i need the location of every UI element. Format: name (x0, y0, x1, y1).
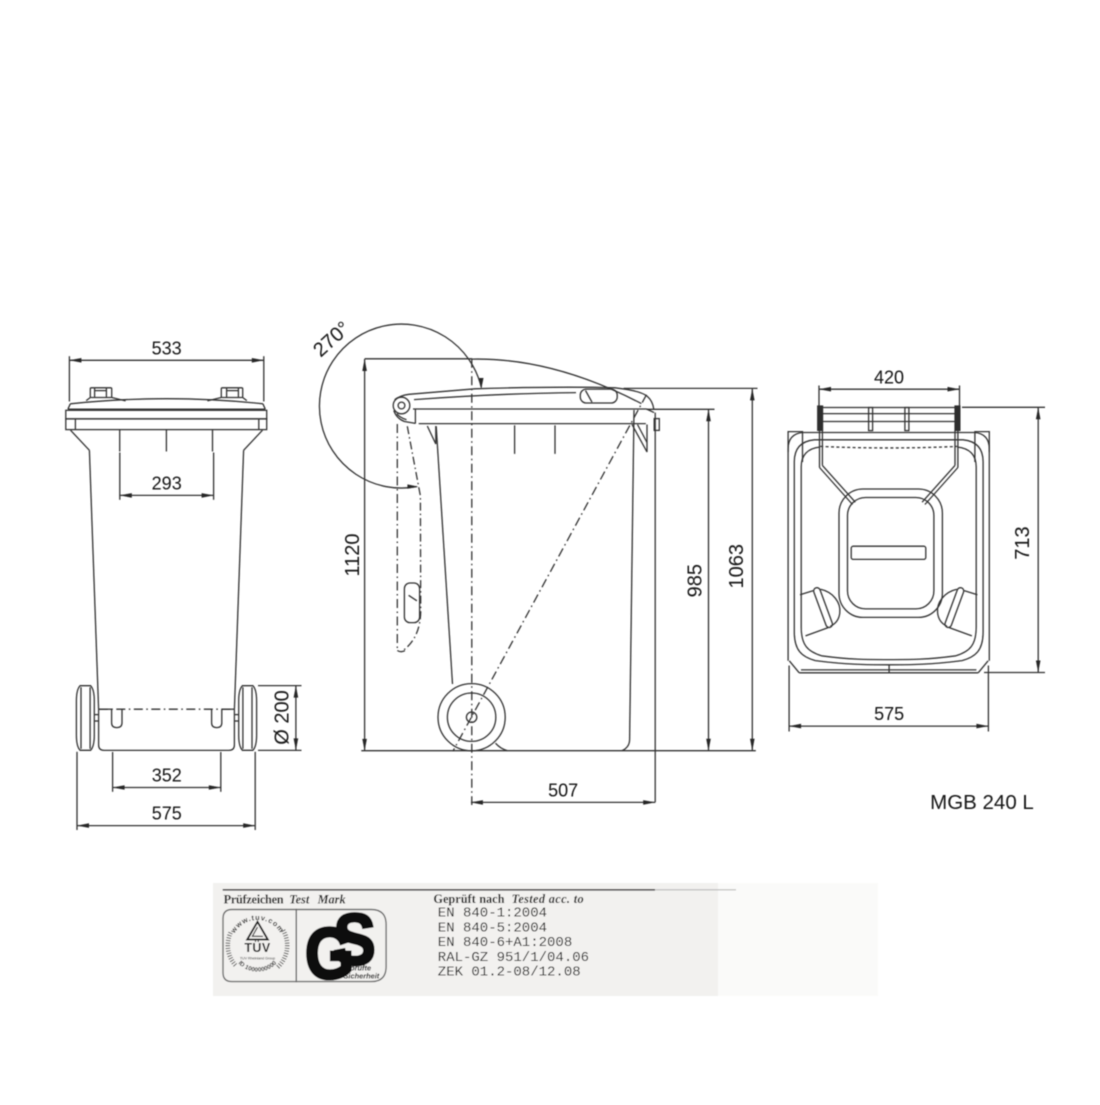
svg-text:EN 840-5:2004: EN 840-5:2004 (438, 920, 547, 936)
svg-text:EN 840-6+A1:2008: EN 840-6+A1:2008 (438, 935, 572, 951)
svg-text:507: 507 (548, 781, 578, 801)
svg-text:293: 293 (152, 473, 182, 493)
svg-text:Geprüft: Geprüft (433, 892, 476, 906)
svg-text:Sicherheit: Sicherheit (344, 971, 380, 980)
svg-text:Test: Test (289, 893, 310, 907)
svg-text:533: 533 (152, 339, 182, 359)
svg-text:RAL-GZ 951/1/04.06: RAL-GZ 951/1/04.06 (438, 950, 589, 966)
svg-text:TUV Rheinland Group: TUV Rheinland Group (240, 957, 275, 961)
svg-text:nach: nach (479, 892, 504, 906)
svg-text:713: 713 (1012, 526, 1034, 559)
svg-text:Ø 200: Ø 200 (271, 690, 293, 744)
svg-text:985: 985 (685, 564, 707, 597)
svg-text:EN 840-1:2004: EN 840-1:2004 (438, 905, 547, 921)
svg-text:1063: 1063 (726, 544, 748, 589)
svg-text:270°: 270° (309, 318, 354, 362)
svg-text:352: 352 (152, 766, 182, 786)
svg-text:575: 575 (874, 704, 904, 724)
svg-text:420: 420 (874, 367, 904, 387)
svg-text:ZEK 01.2-08/12.08: ZEK 01.2-08/12.08 (438, 965, 581, 981)
svg-text:Prüfzeichen: Prüfzeichen (224, 893, 284, 907)
svg-text:575: 575 (152, 804, 182, 824)
svg-text:1120: 1120 (342, 533, 364, 576)
svg-text:TÜV: TÜV (244, 940, 270, 955)
svg-text:Tested acc. to: Tested acc. to (512, 892, 584, 906)
svg-text:MGB 240 L: MGB 240 L (930, 791, 1034, 814)
